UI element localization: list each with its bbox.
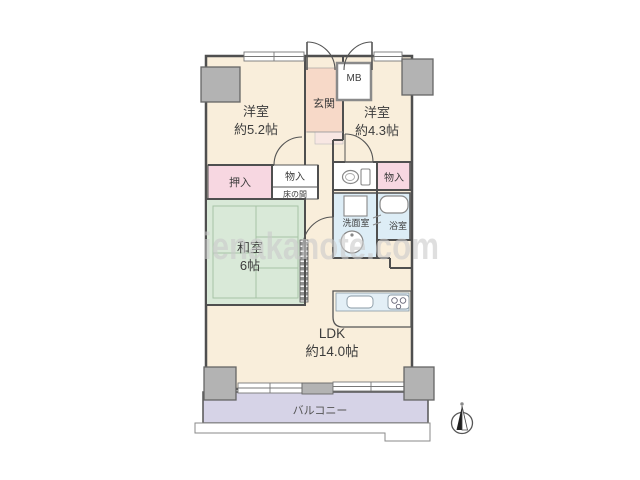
west1-size-label: 約5.2帖 [234,122,278,137]
window-top-left [244,52,304,61]
compass-icon [452,402,473,433]
monoire-left-label: 物入 [285,170,305,183]
monoire-right-label: 物入 [384,171,404,184]
floorplan-page: 洋室 約5.2帖 洋室 約4.3帖 玄関 MB 押入 物入 床の間 物入 和室 … [0,0,640,480]
washer-pan-icon [344,196,367,216]
pillar-bottom-right [404,367,434,400]
kitchen-counter [333,291,411,327]
balcony-label: バルコニー [293,404,348,417]
wall-block-bottom [302,383,333,394]
window-bottom-left [238,383,302,393]
kitchen-sink-icon [347,296,373,308]
window-top-right [374,52,402,61]
west1-name-label: 洋室 [243,104,269,119]
west2-size-label: 約4.3帖 [355,123,399,138]
floorplan-image: 洋室 約5.2帖 洋室 約4.3帖 玄関 MB 押入 物入 床の間 物入 和室 … [0,0,640,480]
ldk-size-label: 約14.0帖 [305,344,358,359]
pillar-bottom-left [204,367,236,400]
west2-name-label: 洋室 [364,105,390,120]
oshiire-label: 押入 [229,175,251,189]
genkan-step [315,132,343,144]
watermark-text: ienakanote.com [203,226,439,268]
balcony-apron [195,423,430,441]
meter-box-label: MB [347,73,362,84]
pillar-top-right [402,59,433,95]
pillar-top-left [201,67,240,102]
ldk-name-label: LDK [319,326,345,341]
tokonoma-label: 床の間 [283,189,307,199]
bathtub-icon [380,196,408,213]
window-bottom-right [333,382,409,391]
stove-icon [388,295,409,309]
genkan-label: 玄関 [313,96,335,110]
